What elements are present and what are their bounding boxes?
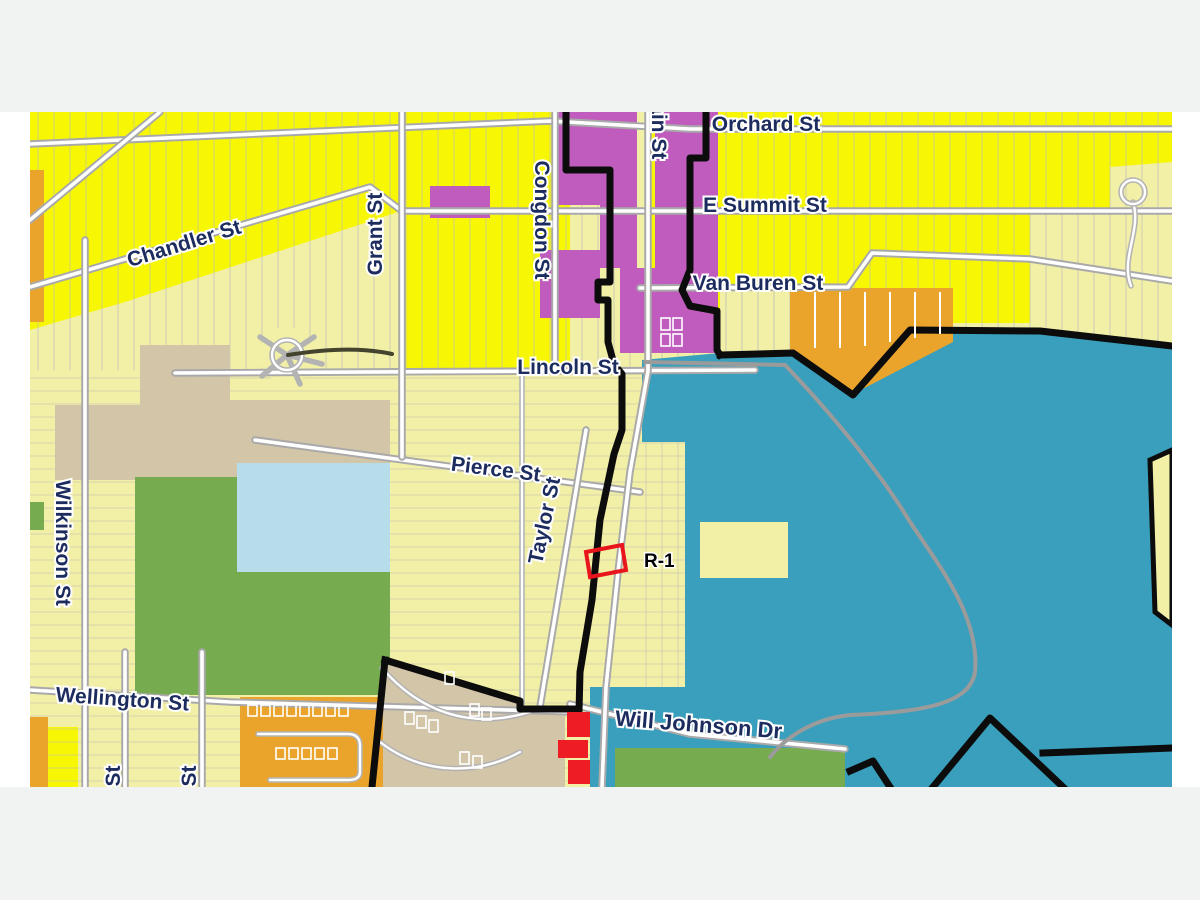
street-label-van-buren: Van Buren St (693, 272, 824, 295)
zone-edge-parcel (1150, 450, 1172, 625)
street-label-grant: Grant St (364, 193, 387, 276)
red-parcel-2 (558, 740, 588, 758)
page: { "page": { "background": "#f1f2f2", "ma… (0, 0, 1200, 900)
street-label-st-partial-2: St (178, 765, 201, 786)
zone-green-south (615, 748, 845, 787)
street-label-wilkinson: Wilkinson St (51, 480, 74, 606)
zone-pale-peninsula (700, 522, 788, 578)
street-label-main-partial: Main St (647, 112, 670, 159)
r1-annotation-label: R-1 (644, 551, 675, 572)
zone-lightblue-west (237, 463, 390, 572)
red-parcel-3 (568, 760, 590, 784)
zone-orange-edge (30, 170, 44, 322)
street-label-lincoln: Lincoln St (517, 356, 619, 379)
boundary-diamond-2 (1043, 748, 1172, 753)
zone-orange-corner (30, 717, 48, 787)
zoning-map-canvas: Orchard St E Summit St Van Buren St Linc… (30, 112, 1172, 787)
street-label-orchard: Orchard St (712, 113, 821, 136)
street-label-congdon: Congdon St (530, 161, 553, 280)
street-label-st-partial-1: St (102, 765, 125, 786)
zone-green-edge (30, 502, 44, 530)
zone-purple-2 (600, 132, 637, 268)
parcel-lines-strip (720, 290, 790, 352)
red-parcel-1 (567, 712, 590, 737)
street-label-e-summit: E Summit St (703, 194, 827, 217)
